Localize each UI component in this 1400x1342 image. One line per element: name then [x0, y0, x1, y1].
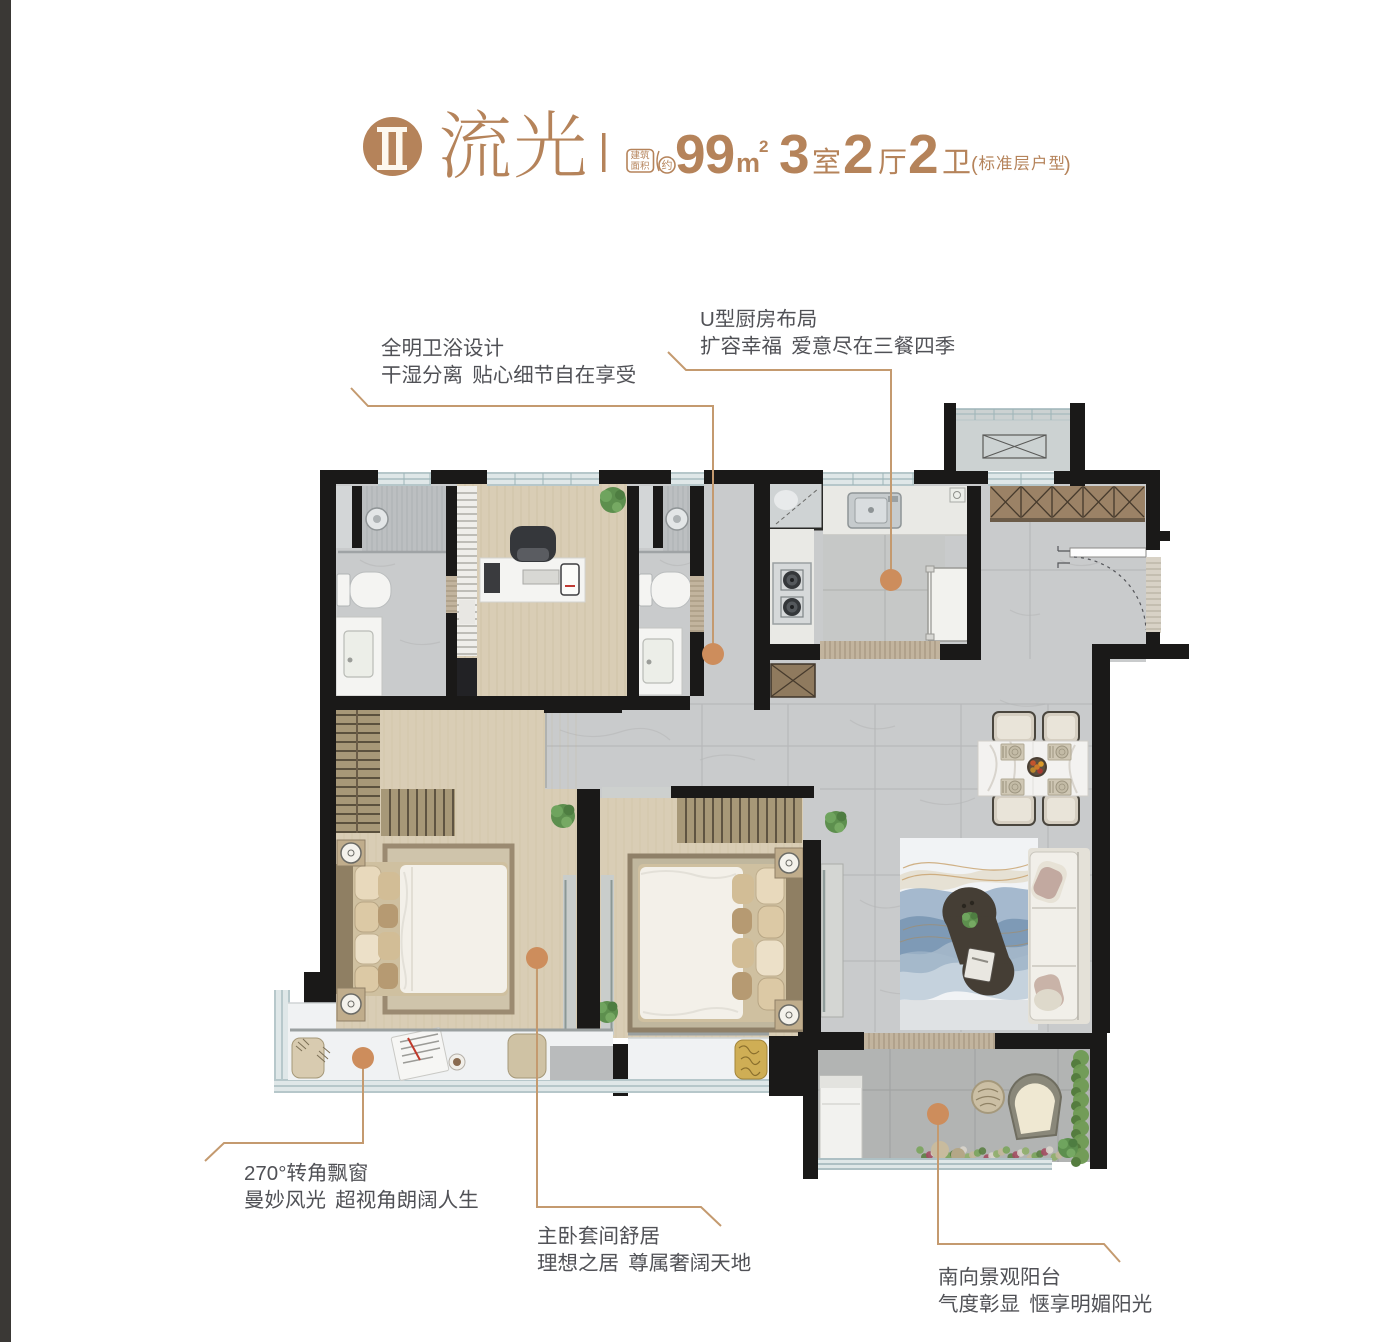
svg-text:U: U	[700, 308, 715, 331]
svg-text:3: 3	[779, 123, 810, 185]
svg-text:2: 2	[759, 137, 768, 156]
svg-text:99: 99	[675, 123, 734, 185]
svg-text:2: 2	[843, 123, 874, 185]
svg-text:m: m	[736, 148, 760, 178]
svg-text:270°: 270°	[244, 1162, 286, 1185]
svg-text:): )	[1064, 154, 1071, 176]
svg-text:(: (	[971, 154, 978, 176]
svg-text:2: 2	[908, 123, 939, 185]
